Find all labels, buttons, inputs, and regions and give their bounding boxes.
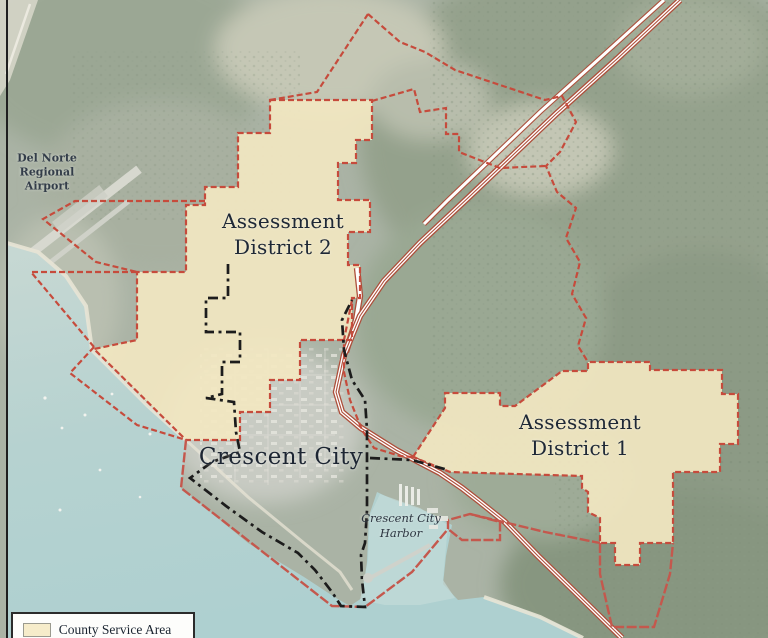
map-border-left <box>6 0 8 638</box>
legend-label: County Service Area No. 1 <box>59 622 193 638</box>
map-canvas: Del Norte Regional Airport Assessment Di… <box>0 0 768 638</box>
district1-label: Assessment District 1 <box>519 409 641 461</box>
legend-swatch <box>23 623 51 637</box>
airport-label: Del Norte Regional Airport <box>17 151 77 192</box>
district2-label: Assessment District 2 <box>222 208 344 260</box>
map-artwork <box>0 0 768 638</box>
harbor-label: Crescent City Harbor <box>361 511 441 541</box>
legend: County Service Area No. 1 <box>11 612 195 638</box>
city-label: Crescent City <box>199 443 363 473</box>
